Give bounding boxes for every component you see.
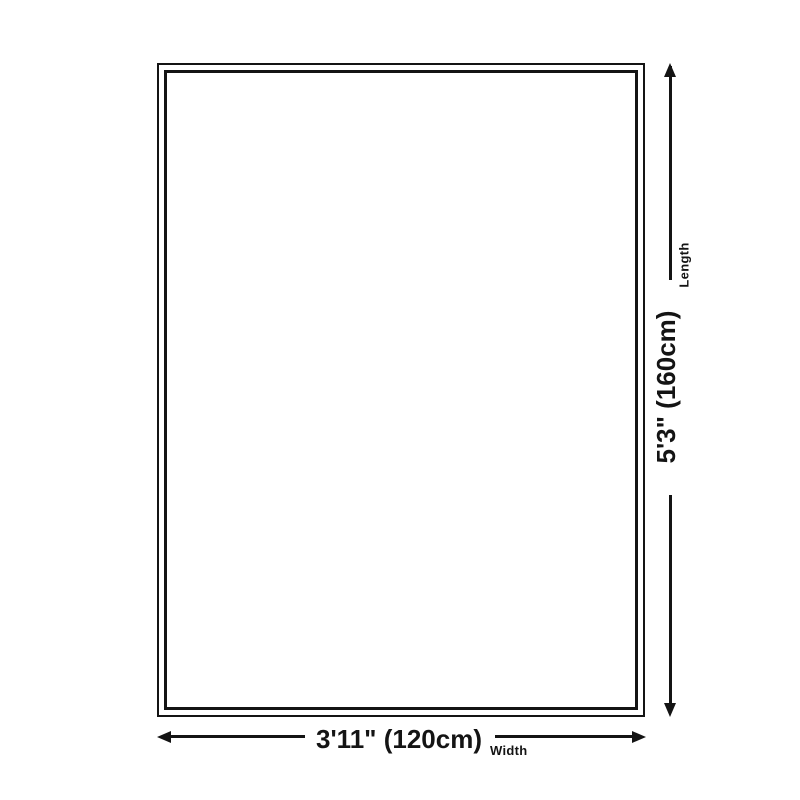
- rug-outline-outer: [157, 63, 645, 717]
- length-value: 5'3" (160cm): [653, 311, 679, 464]
- length-arrow-line-top: [669, 66, 672, 280]
- width-arrow-right-icon: [632, 731, 646, 743]
- length-arrow-down-icon: [664, 703, 676, 717]
- width-arrow-line-left: [162, 735, 305, 738]
- rug-outline-inner: [164, 70, 638, 710]
- length-arrow-line-bottom: [669, 495, 672, 707]
- width-arrow-line-right: [495, 735, 635, 738]
- width-label: Width: [490, 744, 527, 757]
- length-label: Length: [678, 242, 691, 287]
- dimension-diagram: Length 5'3" (160cm) 3'11" (120cm) Width: [0, 0, 800, 800]
- width-value: 3'11" (120cm): [316, 726, 482, 752]
